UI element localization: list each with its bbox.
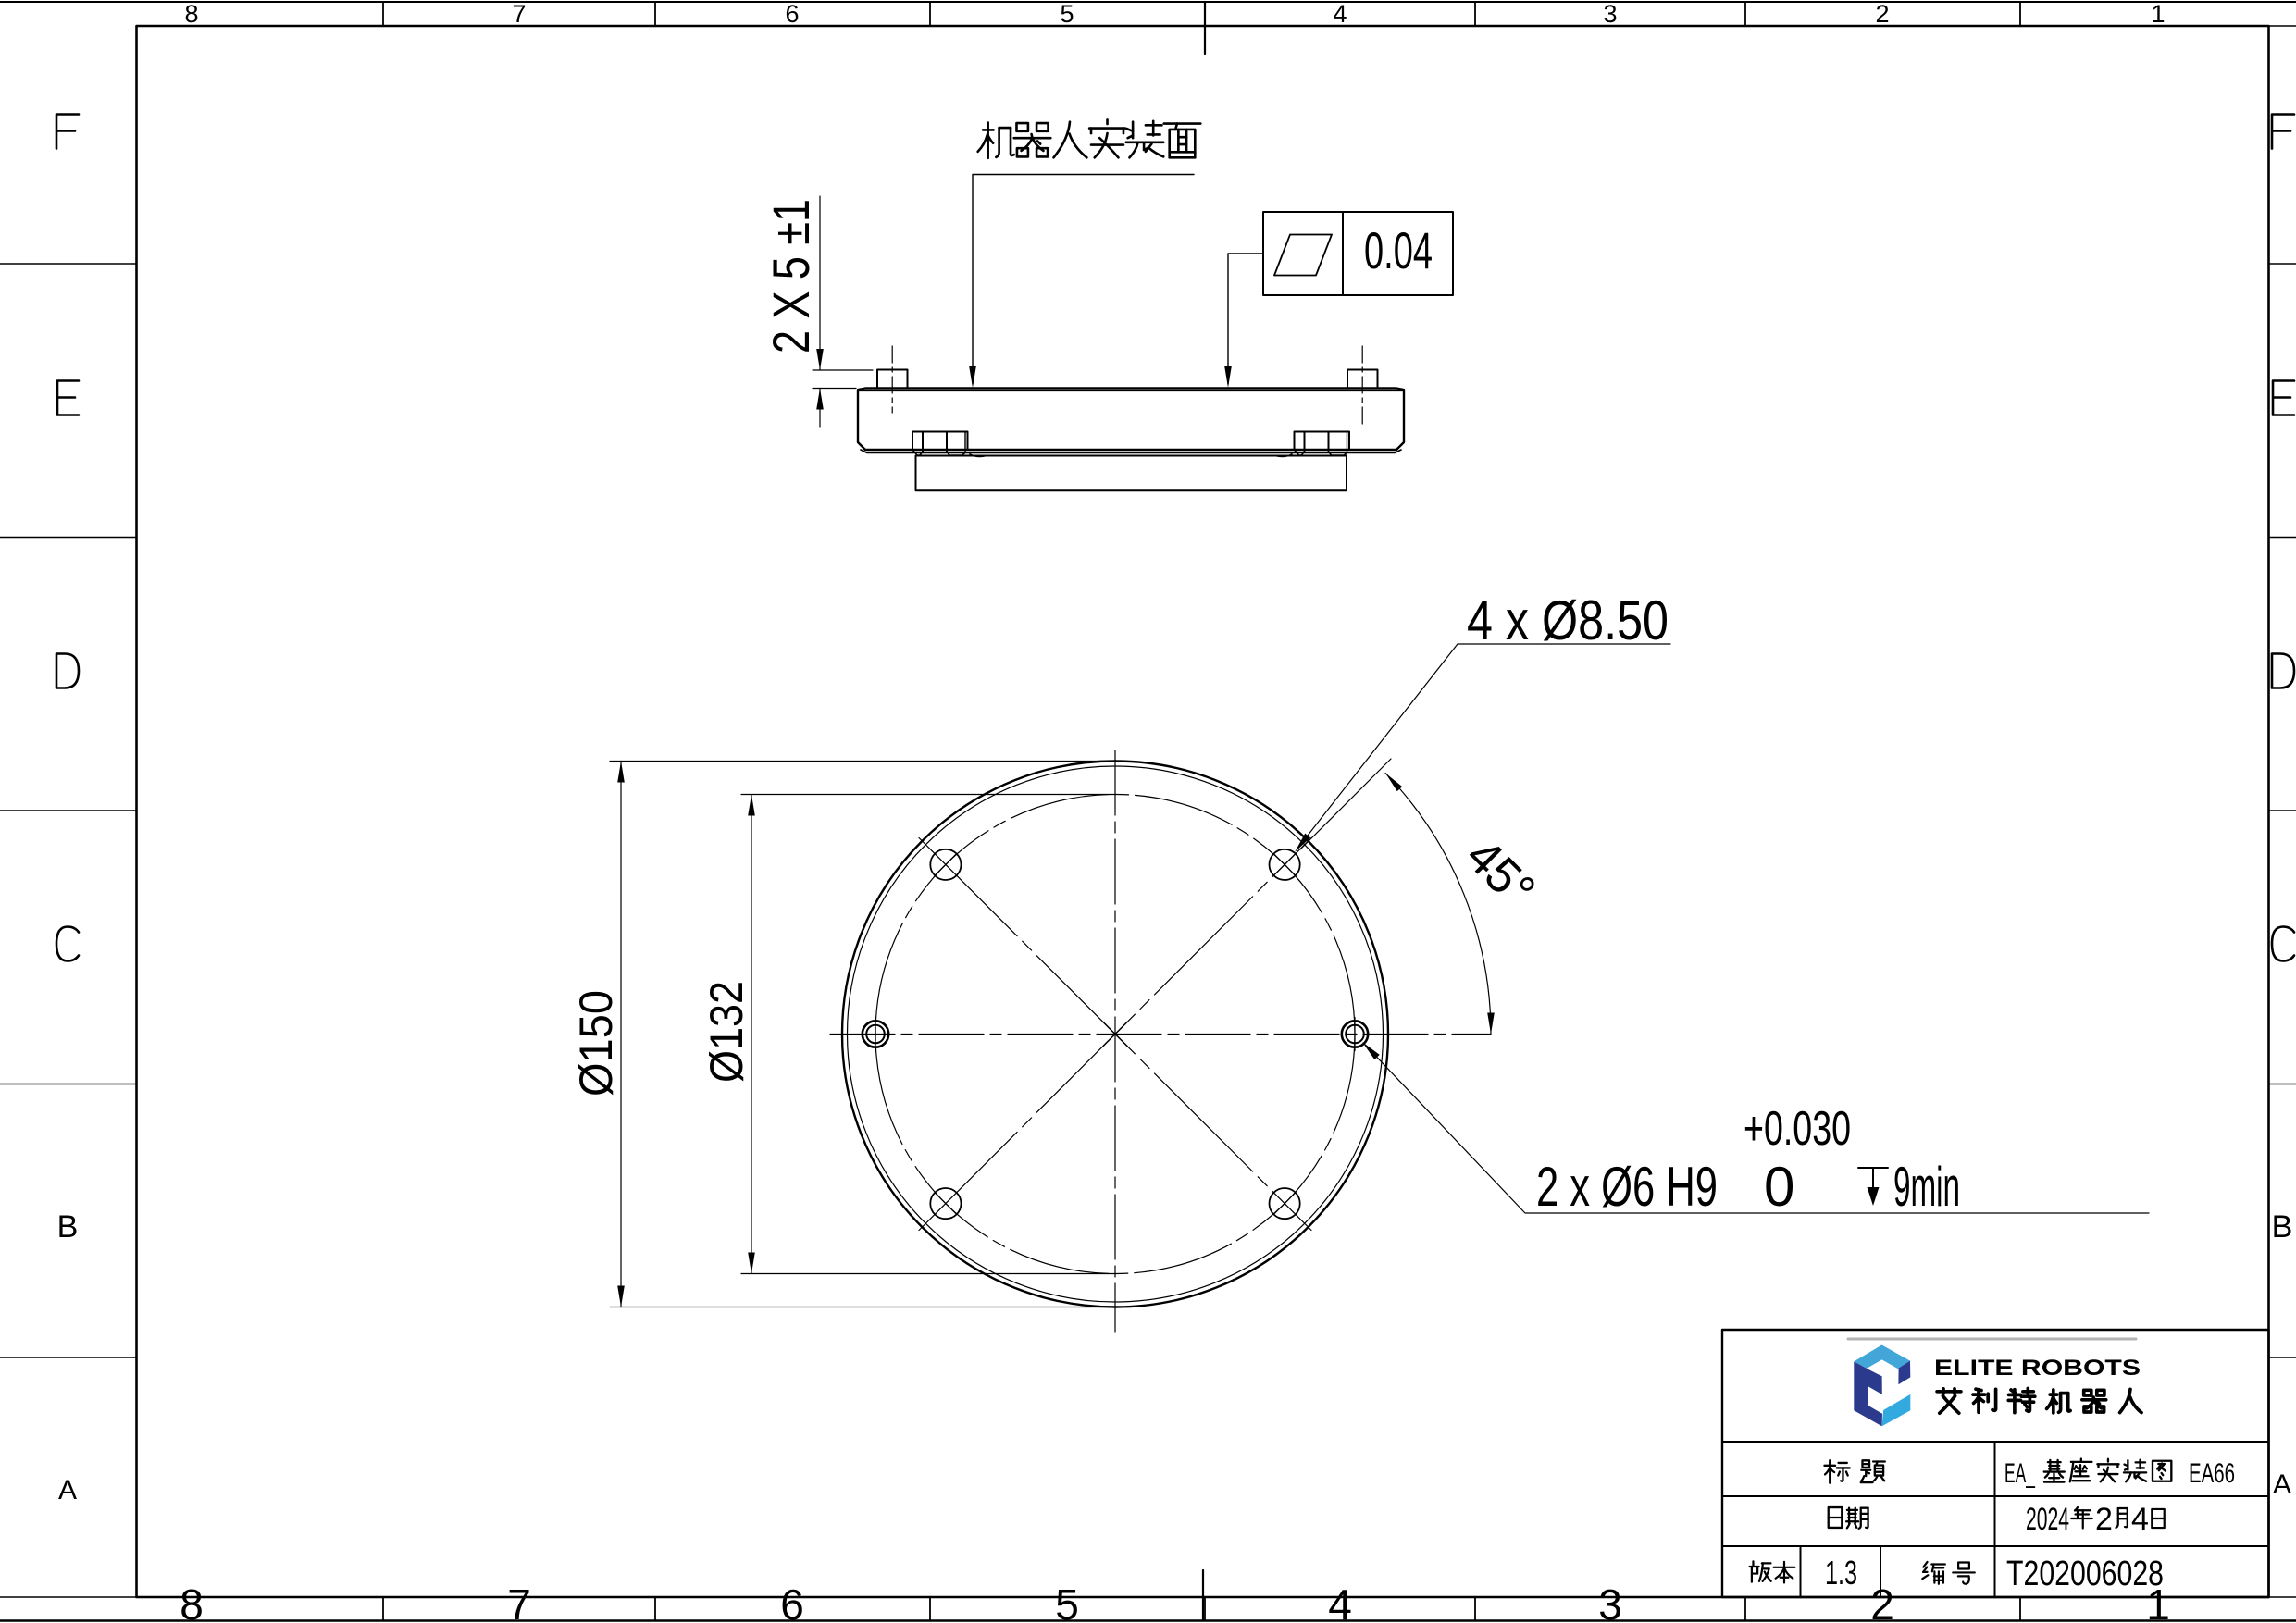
svg-text:A: A (2273, 1469, 2291, 1500)
svg-text:6: 6 (780, 1580, 804, 1623)
svg-text:8: 8 (184, 0, 198, 28)
svg-text:0: 0 (1764, 1156, 1794, 1218)
svg-text:Ø150: Ø150 (570, 990, 622, 1096)
svg-text:A: A (58, 1475, 77, 1505)
svg-text:EA_: EA_ (2004, 1458, 2036, 1489)
svg-text:B: B (2272, 1209, 2293, 1245)
svg-text:2: 2 (2095, 1502, 2113, 1537)
svg-text:4: 4 (2131, 1502, 2149, 1537)
svg-text:ELITE ROBOTS: ELITE ROBOTS (1934, 1356, 2141, 1381)
svg-text:+0.030: +0.030 (1744, 1102, 1851, 1156)
svg-text:4 x Ø8.50: 4 x Ø8.50 (1467, 589, 1669, 651)
svg-text:5: 5 (1055, 1580, 1079, 1623)
svg-text:8: 8 (180, 1580, 204, 1623)
svg-text:T202006028: T202006028 (2006, 1555, 2164, 1593)
svg-text:3: 3 (1598, 1580, 1622, 1623)
svg-text:0.04: 0.04 (1364, 221, 1433, 279)
svg-text:9min: 9min (1893, 1156, 1960, 1218)
svg-text:4: 4 (1328, 1580, 1352, 1623)
svg-text:2024: 2024 (2026, 1502, 2069, 1537)
svg-text:2 x Ø6 H9: 2 x Ø6 H9 (1536, 1156, 1718, 1218)
svg-text:6: 6 (785, 0, 799, 28)
svg-text:1.3: 1.3 (1825, 1554, 1857, 1592)
svg-text:B: B (57, 1209, 79, 1245)
svg-text:2: 2 (1870, 1580, 1894, 1623)
svg-text:3: 3 (1603, 0, 1617, 28)
svg-text:EA66: EA66 (2189, 1458, 2235, 1489)
svg-text:1: 1 (2151, 0, 2165, 28)
svg-text:7: 7 (512, 0, 526, 28)
svg-text:2 X 5 ±1: 2 X 5 ±1 (762, 199, 820, 353)
svg-text:4: 4 (1333, 0, 1347, 28)
svg-text:Ø132: Ø132 (701, 981, 752, 1083)
svg-text:2: 2 (1875, 0, 1889, 28)
svg-text:5: 5 (1060, 0, 1074, 28)
svg-text:7: 7 (507, 1580, 531, 1623)
